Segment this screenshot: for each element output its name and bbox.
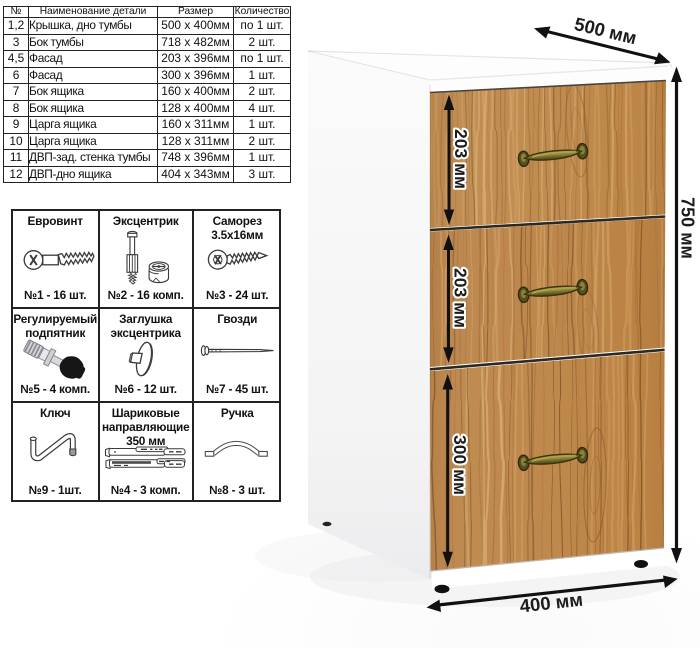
svg-text:750 мм: 750 мм: [678, 197, 698, 259]
svg-text:500 мм: 500 мм: [572, 13, 639, 48]
svg-text:203 мм: 203 мм: [451, 129, 471, 189]
svg-text:203 мм: 203 мм: [451, 268, 471, 328]
svg-text:300 мм: 300 мм: [450, 435, 470, 495]
